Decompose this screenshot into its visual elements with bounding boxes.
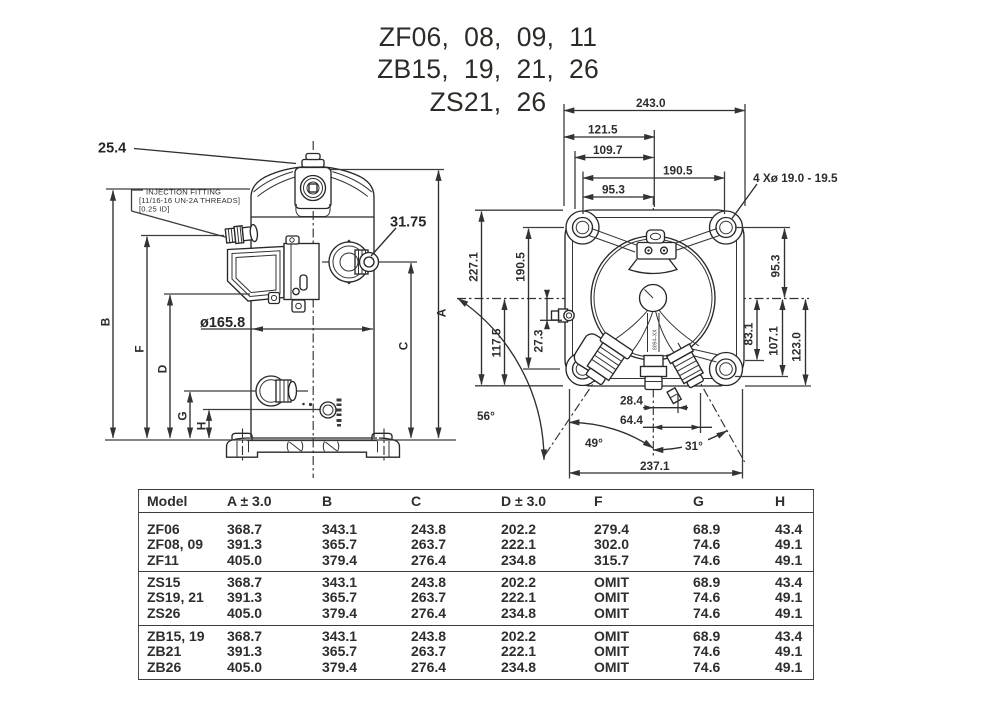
svg-text:25.4: 25.4 — [98, 141, 126, 157]
svg-text:[0.25 ID]: [0.25 ID] — [139, 205, 170, 214]
svg-text:A: A — [435, 308, 449, 317]
svg-text:64.4: 64.4 — [620, 413, 643, 427]
svg-text:31.75: 31.75 — [390, 215, 426, 231]
svg-text:D: D — [156, 364, 170, 373]
svg-text:56°: 56° — [477, 409, 495, 423]
svg-text:83.1: 83.1 — [742, 322, 756, 345]
svg-text:27.3: 27.3 — [532, 329, 546, 352]
svg-text:190.5: 190.5 — [514, 252, 528, 282]
svg-text:F: F — [133, 345, 147, 352]
svg-text:H: H — [195, 422, 209, 431]
svg-text:107.1: 107.1 — [767, 326, 781, 356]
svg-text:31°: 31° — [685, 439, 703, 453]
svg-text:8094–XX: 8094–XX — [653, 329, 659, 350]
svg-text:237.1: 237.1 — [640, 459, 670, 473]
svg-text:95.3: 95.3 — [769, 254, 783, 277]
svg-text:C: C — [397, 341, 411, 350]
svg-text:28.4: 28.4 — [620, 394, 643, 408]
svg-text:G: G — [176, 411, 190, 420]
svg-text:49°: 49° — [585, 436, 603, 450]
svg-text:243.0: 243.0 — [636, 96, 666, 110]
svg-text:ø165.8: ø165.8 — [200, 315, 245, 331]
svg-text:123.0: 123.0 — [790, 332, 804, 362]
svg-text:190.5: 190.5 — [663, 164, 693, 178]
svg-text:109.7: 109.7 — [593, 143, 623, 157]
svg-text:227.1: 227.1 — [467, 252, 481, 282]
svg-text:121.5: 121.5 — [588, 123, 618, 137]
svg-text:4 Xø 19.0 - 19.5: 4 Xø 19.0 - 19.5 — [753, 171, 838, 185]
svg-text:B: B — [99, 318, 113, 327]
svg-text:95.3: 95.3 — [602, 183, 625, 197]
